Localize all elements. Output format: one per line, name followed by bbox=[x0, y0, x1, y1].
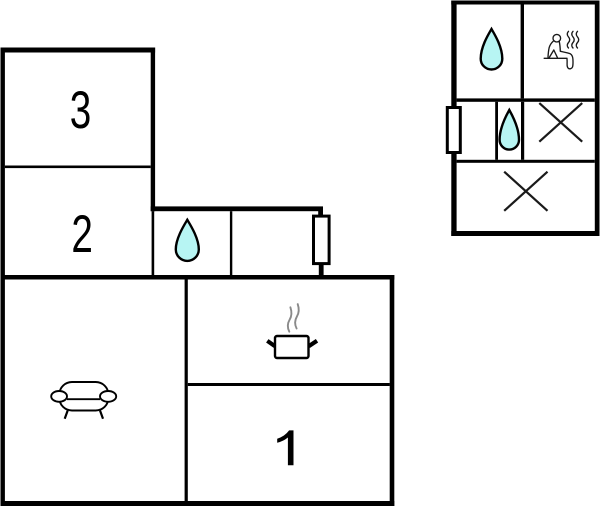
svg-text:3: 3 bbox=[70, 80, 92, 139]
svg-text:2: 2 bbox=[71, 204, 93, 263]
